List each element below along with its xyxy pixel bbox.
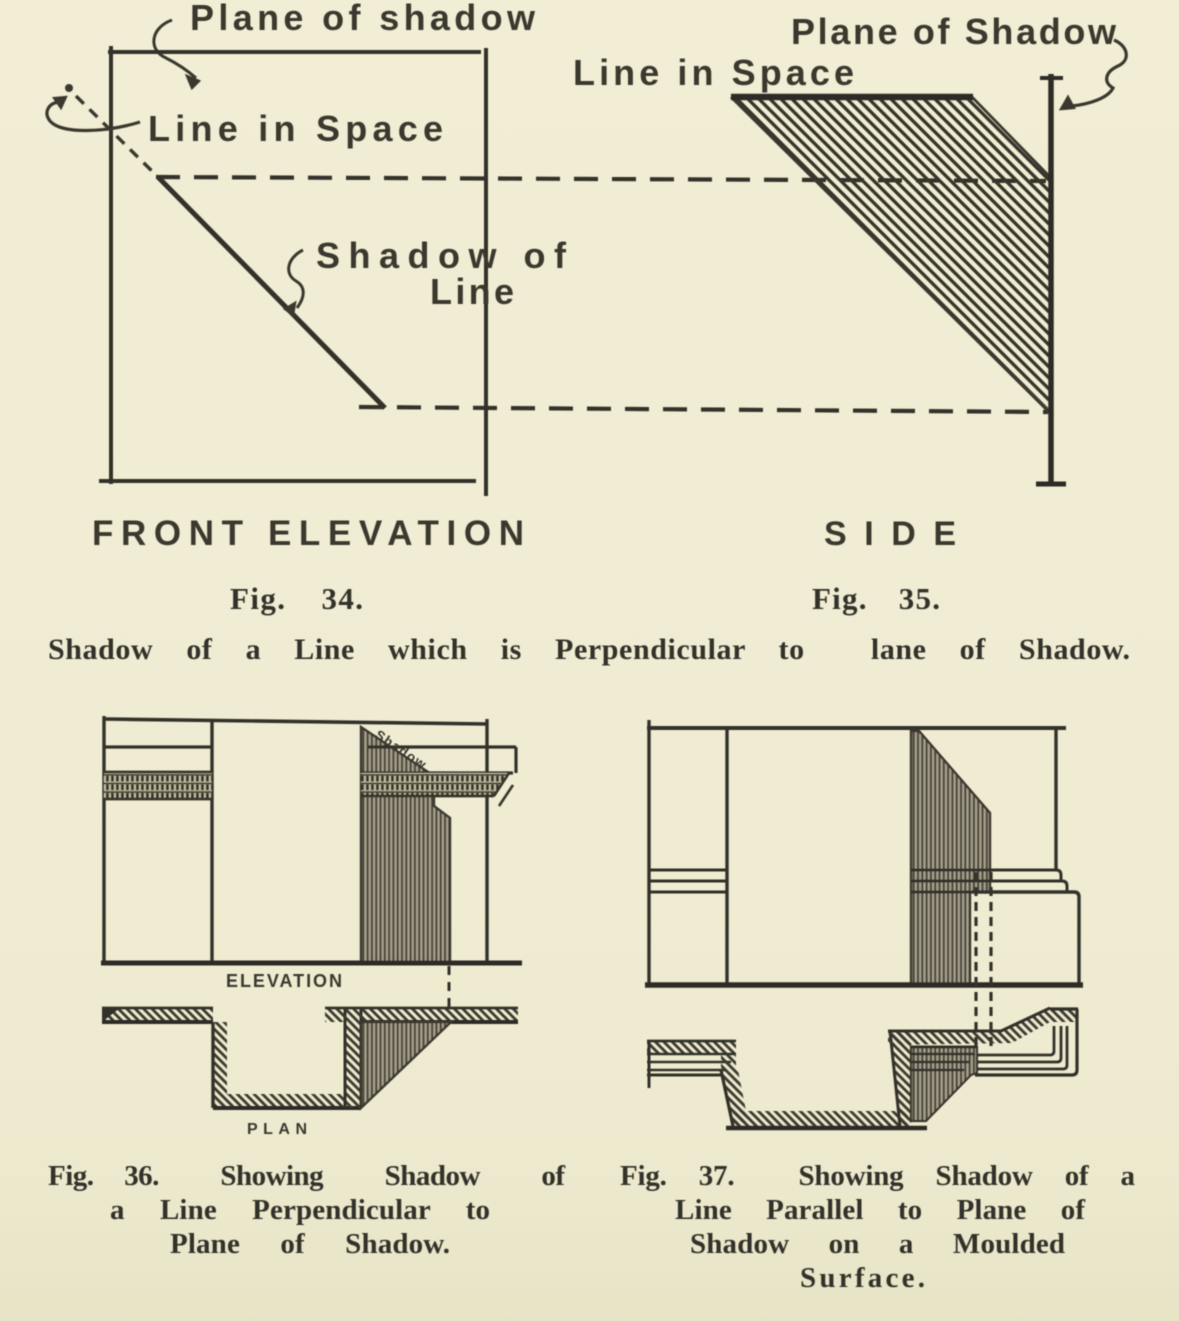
svg-text:Fig. 34.: Fig. 34.	[230, 581, 363, 616]
svg-text:Fig. 35.: Fig. 35.	[812, 581, 940, 616]
svg-text:Shadow of: Shadow of	[316, 235, 567, 276]
svg-text:Line Parallel to Plane of: Line Parallel to Plane of	[675, 1194, 1085, 1226]
svg-text:Shadow on a Moulded: Shadow on a Moulded	[690, 1228, 1065, 1260]
svg-text:ELEVATION: ELEVATION	[226, 971, 342, 991]
svg-text:Plane of Shadow: Plane of Shadow	[791, 11, 1117, 52]
svg-text:Fig. 37. Showing Shadow of a: Fig. 37. Showing Shadow of a	[620, 1160, 1136, 1192]
svg-text:Surface.: Surface.	[800, 1262, 925, 1294]
svg-text:Plane of Shadow.: Plane of Shadow.	[170, 1228, 450, 1260]
svg-text:Line: Line	[430, 271, 514, 312]
svg-text:Shadow of a Line which is Perp: Shadow of a Line which is Perpendicular …	[48, 633, 1130, 666]
svg-text:a Line Perpendicular to: a Line Perpendicular to	[110, 1194, 490, 1226]
svg-text:Fig. 36. Showing Shadow of: Fig. 36. Showing Shadow of	[48, 1160, 565, 1192]
